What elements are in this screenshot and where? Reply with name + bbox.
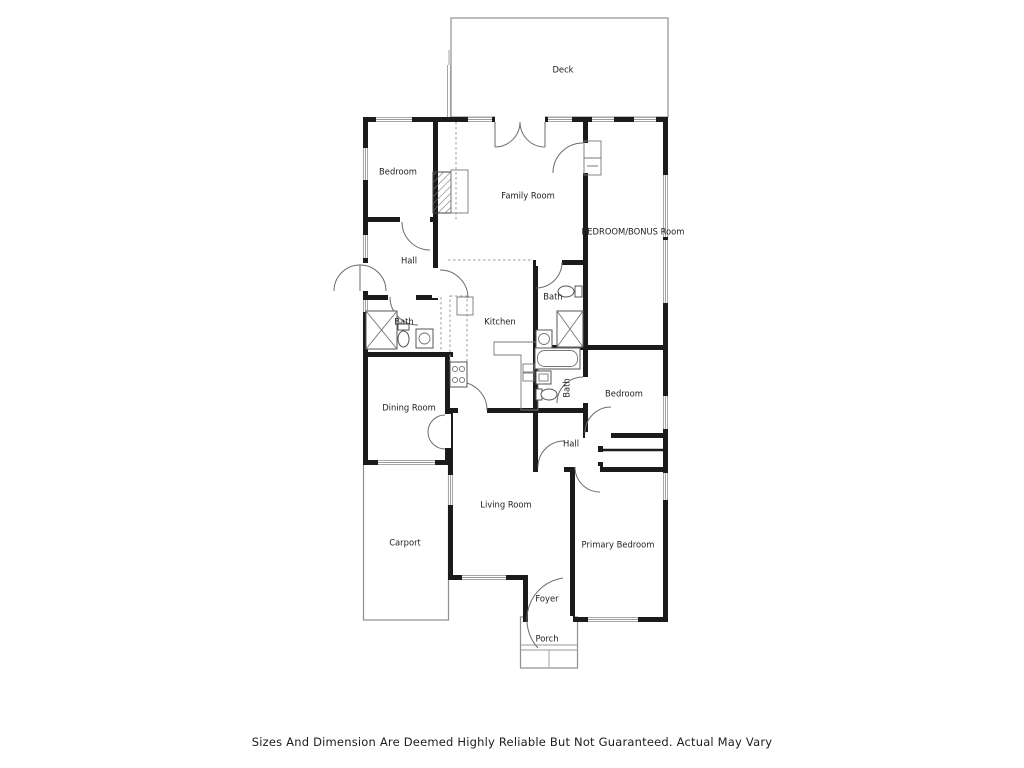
window xyxy=(548,117,572,122)
dining-french-doors-arc xyxy=(428,415,445,449)
window xyxy=(376,117,412,122)
room-label-bath-middle-top: Bath xyxy=(543,292,562,302)
room-label-kitchen: Kitchen xyxy=(484,317,515,327)
room-label-dining-room: Dining Room xyxy=(382,403,436,413)
french-door-right-leaf xyxy=(520,122,545,147)
fireplace xyxy=(433,170,468,213)
toilet-ensuite xyxy=(536,389,557,400)
stove xyxy=(450,362,467,387)
window xyxy=(462,575,506,580)
window xyxy=(663,396,668,429)
french-door-left-leaf xyxy=(495,122,520,147)
window xyxy=(588,617,638,622)
bonus-room-door-arc xyxy=(553,143,583,173)
room-label-living-room: Living Room xyxy=(480,500,531,510)
room-label-bath-left: Bath xyxy=(394,317,413,327)
hall-living-door-arc xyxy=(538,441,564,467)
room-label-porch: Porch xyxy=(535,634,558,644)
kitchen-counter xyxy=(450,296,473,362)
bathtub xyxy=(535,348,580,369)
room-label-carport: Carport xyxy=(389,538,421,548)
bedroom-top-door-arc xyxy=(402,222,430,250)
bedroom-middle-door-arc xyxy=(585,407,611,433)
sink-ensuite xyxy=(536,371,551,384)
window xyxy=(363,235,368,258)
room-label-primary-bedroom: Primary Bedroom xyxy=(582,540,655,550)
room-label-family-room: Family Room xyxy=(501,191,554,201)
window xyxy=(378,460,435,465)
window xyxy=(634,117,656,122)
room-label-bedroom-top-left: Bedroom xyxy=(379,167,417,177)
room-label-hall-upper: Hall xyxy=(401,256,417,266)
disclaimer-text: Sizes And Dimension Are Deemed Highly Re… xyxy=(0,735,1024,749)
window xyxy=(468,117,492,122)
floor-plan-drawing: DeckBedroomFamily RoomBEDROOM/BONUS Room… xyxy=(0,0,1024,768)
floor-plan-page: DeckBedroomFamily RoomBEDROOM/BONUS Room… xyxy=(0,0,1024,768)
kitchen-island xyxy=(494,342,538,410)
hall-exterior-door-arc xyxy=(334,265,386,291)
toilet-left xyxy=(398,324,409,347)
window xyxy=(663,240,668,303)
room-label-bedroom-middle-right: Bedroom xyxy=(605,389,643,399)
window xyxy=(592,117,614,122)
sink-middle-top xyxy=(536,330,552,348)
room-label-hall-lower: Hall xyxy=(563,439,579,449)
window xyxy=(448,475,453,505)
room-label-foyer: Foyer xyxy=(535,594,559,604)
hall-kitchen-door-arc xyxy=(440,270,468,298)
sink-left xyxy=(416,329,433,348)
window xyxy=(663,473,668,500)
room-label-deck: Deck xyxy=(552,65,573,75)
window xyxy=(363,300,368,312)
shower-middle-top xyxy=(557,311,583,347)
shower-left xyxy=(366,311,397,349)
room-label-bedroom-bonus-room: BEDROOM/BONUS Room xyxy=(582,227,685,237)
window xyxy=(363,148,368,180)
room-label-bath-ensuite: Bath xyxy=(562,378,572,397)
